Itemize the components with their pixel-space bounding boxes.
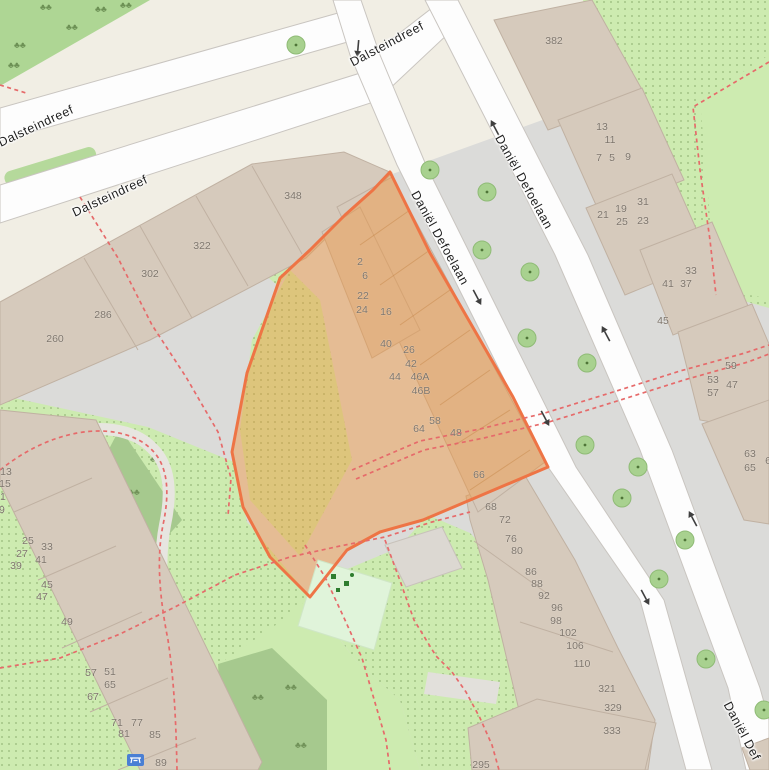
house-number-label: 13 bbox=[596, 121, 608, 133]
house-number-label: 9 bbox=[625, 151, 631, 163]
house-number-label: 302 bbox=[141, 268, 159, 280]
house-number-label: 42 bbox=[405, 358, 417, 370]
house-number-label: 47 bbox=[36, 591, 48, 603]
house-number-label: 41 bbox=[662, 278, 674, 290]
house-number-label: 22 bbox=[357, 290, 369, 302]
house-number-label: 47 bbox=[726, 379, 738, 391]
house-number-label: 96 bbox=[551, 602, 563, 614]
house-number-label: 89 bbox=[155, 757, 167, 769]
house-number-label: 40 bbox=[380, 338, 392, 350]
house-number-label: 286 bbox=[94, 309, 112, 321]
house-number-label: 19 bbox=[0, 504, 5, 516]
tree-icon bbox=[481, 249, 484, 252]
tree-icon bbox=[705, 658, 708, 661]
tree-icon bbox=[429, 169, 432, 172]
house-number-label: 260 bbox=[46, 333, 64, 345]
house-number-label: 67 bbox=[87, 691, 99, 703]
tree-icon bbox=[755, 701, 769, 719]
house-number-label: 295 bbox=[472, 759, 490, 770]
map-graphics: ♣♣♣♣♣♣♣♣♣♣♣♣♣♣♣♣♣♣♣♣♣♣♣♣ bbox=[0, 0, 769, 770]
house-number-label: 110 bbox=[574, 658, 591, 670]
house-number-label: 31 bbox=[637, 196, 649, 208]
house-number-label: 41 bbox=[35, 554, 47, 566]
house-number-label: 45 bbox=[657, 315, 669, 327]
house-number-label: 80 bbox=[511, 545, 523, 557]
house-number-label: 88 bbox=[531, 578, 543, 590]
tree-pattern-glyph: ♣♣ bbox=[252, 692, 264, 702]
tree-icon bbox=[529, 271, 532, 274]
tree-icon bbox=[684, 539, 687, 542]
tree-pattern-glyph: ♣♣ bbox=[295, 740, 307, 750]
house-number-label: 59 bbox=[725, 360, 737, 372]
house-number-label: 5 bbox=[609, 152, 615, 164]
house-number-label: 33 bbox=[685, 265, 697, 277]
house-number-label: 76 bbox=[505, 533, 517, 545]
house-number-label: 102 bbox=[559, 627, 577, 639]
tree-icon bbox=[658, 578, 661, 581]
tree-pattern-glyph: ♣♣ bbox=[66, 22, 78, 32]
house-number-label: 25 bbox=[22, 535, 34, 547]
house-number-label: 33 bbox=[41, 541, 53, 553]
tree-pattern-glyph: ♣♣ bbox=[14, 40, 26, 50]
tree-icon bbox=[763, 709, 766, 712]
tree-icon bbox=[526, 337, 529, 340]
house-number-label: 16 bbox=[380, 306, 392, 318]
house-number-label: 15 bbox=[0, 478, 11, 490]
tree-icon bbox=[586, 362, 589, 365]
house-number-label: 65 bbox=[104, 679, 116, 691]
house-number-label: 65 bbox=[744, 462, 756, 474]
house-number-label: 49 bbox=[61, 616, 73, 628]
house-number-label: 21 bbox=[0, 491, 6, 503]
tree-pattern-glyph: ♣♣ bbox=[120, 0, 132, 10]
house-number-label: 37 bbox=[680, 278, 692, 290]
house-number-label: 27 bbox=[16, 548, 28, 560]
tree-icon bbox=[584, 444, 587, 447]
house-number-label: 21 bbox=[597, 209, 609, 221]
house-number-label: 92 bbox=[538, 590, 550, 602]
house-number-label: 26 bbox=[403, 344, 415, 356]
house-number-label: 85 bbox=[149, 729, 161, 741]
house-number-label: 46A bbox=[411, 371, 430, 383]
house-number-label: 46B bbox=[412, 385, 431, 397]
house-number-label: 72 bbox=[499, 514, 511, 526]
house-number-label: 68 bbox=[485, 501, 497, 513]
tree-pattern-glyph: ♣♣ bbox=[95, 4, 107, 14]
tree-pattern-glyph: ♣♣ bbox=[285, 682, 297, 692]
house-number-label: 6 bbox=[362, 270, 368, 282]
picnic-table-icon bbox=[127, 754, 144, 766]
house-number-label: 51 bbox=[104, 666, 116, 678]
tree-icon bbox=[486, 191, 489, 194]
house-number-label: 2 bbox=[357, 256, 363, 268]
house-number-label: 13 bbox=[0, 466, 12, 478]
tree-pattern-glyph: ♣♣ bbox=[8, 60, 20, 70]
house-number-label: 39 bbox=[10, 560, 22, 572]
house-number-label: 66 bbox=[473, 469, 485, 481]
house-number-label: 58 bbox=[429, 415, 441, 427]
house-number-label: 98 bbox=[550, 615, 562, 627]
house-number-label: 7 bbox=[596, 152, 602, 164]
house-number-label: 64 bbox=[413, 423, 425, 435]
house-number-label: 57 bbox=[707, 387, 719, 399]
house-number-label: 382 bbox=[545, 35, 563, 47]
house-number-label: 19 bbox=[615, 203, 627, 215]
house-number-label: 106 bbox=[566, 640, 584, 652]
house-number-label: 321 bbox=[598, 683, 616, 695]
house-number-label: 25 bbox=[616, 216, 628, 228]
house-number-label: 11 bbox=[605, 134, 616, 146]
house-number-label: 48 bbox=[450, 427, 462, 439]
house-number-label: 24 bbox=[356, 304, 368, 316]
map-canvas[interactable]: ♣♣♣♣♣♣♣♣♣♣♣♣♣♣♣♣♣♣♣♣♣♣♣♣ bbox=[0, 0, 769, 770]
tree-icon bbox=[295, 44, 298, 47]
house-number-label: 57 bbox=[85, 667, 97, 679]
house-number-label: 63 bbox=[744, 448, 756, 460]
house-number-label: 23 bbox=[637, 215, 649, 227]
house-number-label: 44 bbox=[389, 371, 401, 383]
tree-pattern-glyph: ♣♣ bbox=[40, 2, 52, 12]
tree-icon bbox=[637, 466, 640, 469]
house-number-label: 6 bbox=[765, 455, 769, 467]
house-number-label: 333 bbox=[603, 725, 621, 737]
tree-icon bbox=[621, 497, 624, 500]
house-number-label: 77 bbox=[131, 717, 143, 729]
house-number-label: 81 bbox=[118, 728, 130, 740]
house-number-label: 322 bbox=[193, 240, 211, 252]
house-number-label: 348 bbox=[284, 190, 302, 202]
house-number-label: 53 bbox=[707, 374, 719, 386]
house-number-label: 45 bbox=[41, 579, 53, 591]
house-number-label: 86 bbox=[525, 566, 537, 578]
house-number-label: 329 bbox=[604, 702, 622, 714]
